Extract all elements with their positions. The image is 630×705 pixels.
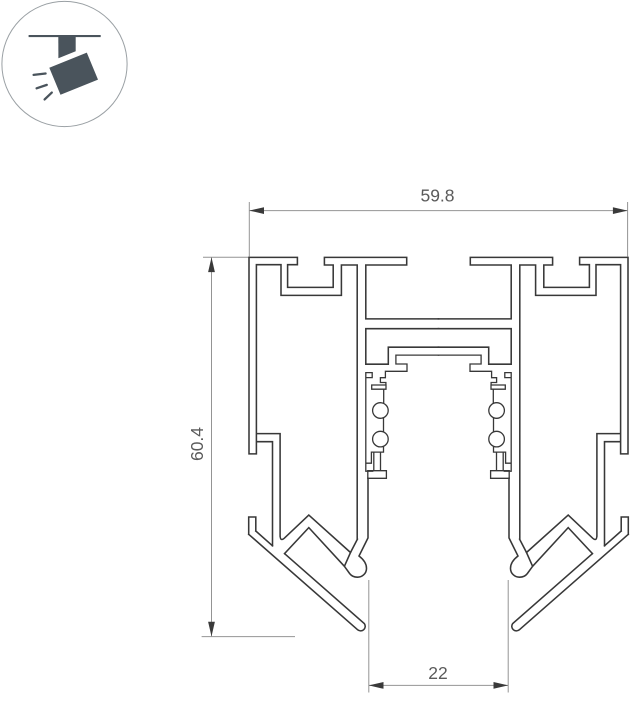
svg-text:59.8: 59.8	[420, 186, 454, 206]
svg-text:60.4: 60.4	[187, 427, 207, 461]
svg-text:22: 22	[428, 663, 447, 683]
